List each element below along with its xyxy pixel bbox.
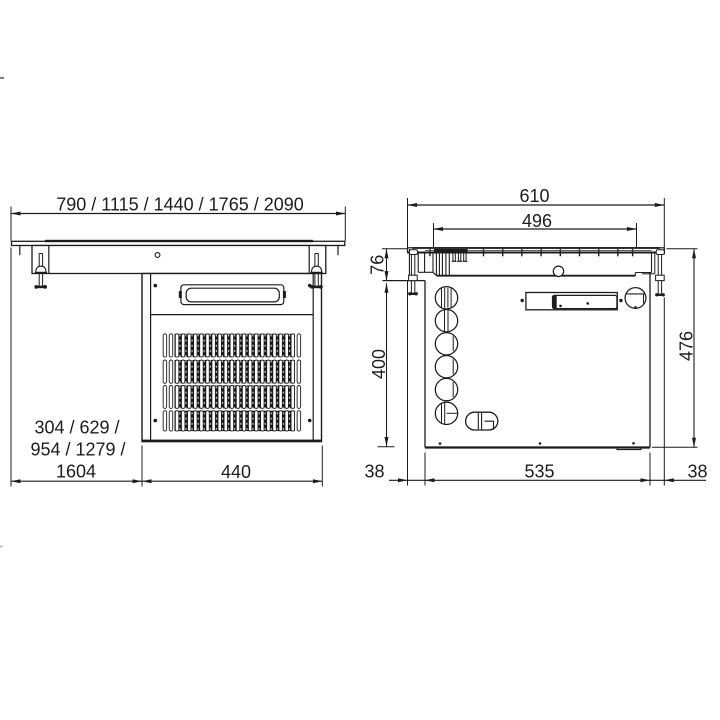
svg-text:610: 610 xyxy=(519,186,549,206)
svg-text:535: 535 xyxy=(524,461,554,481)
svg-text:38: 38 xyxy=(364,461,384,481)
svg-text:38: 38 xyxy=(687,461,707,481)
svg-text:496: 496 xyxy=(522,211,552,231)
svg-text:954 / 1279 /: 954 / 1279 / xyxy=(30,440,125,460)
svg-text:790 / 1115 / 1440 / 1765 / 209: 790 / 1115 / 1440 / 1765 / 2090 xyxy=(56,195,304,215)
svg-text:1604: 1604 xyxy=(56,462,96,482)
svg-text:440: 440 xyxy=(221,462,251,482)
svg-text:304 / 629 /: 304 / 629 / xyxy=(34,418,119,438)
svg-text:76: 76 xyxy=(368,255,388,275)
svg-text:476: 476 xyxy=(676,331,696,361)
